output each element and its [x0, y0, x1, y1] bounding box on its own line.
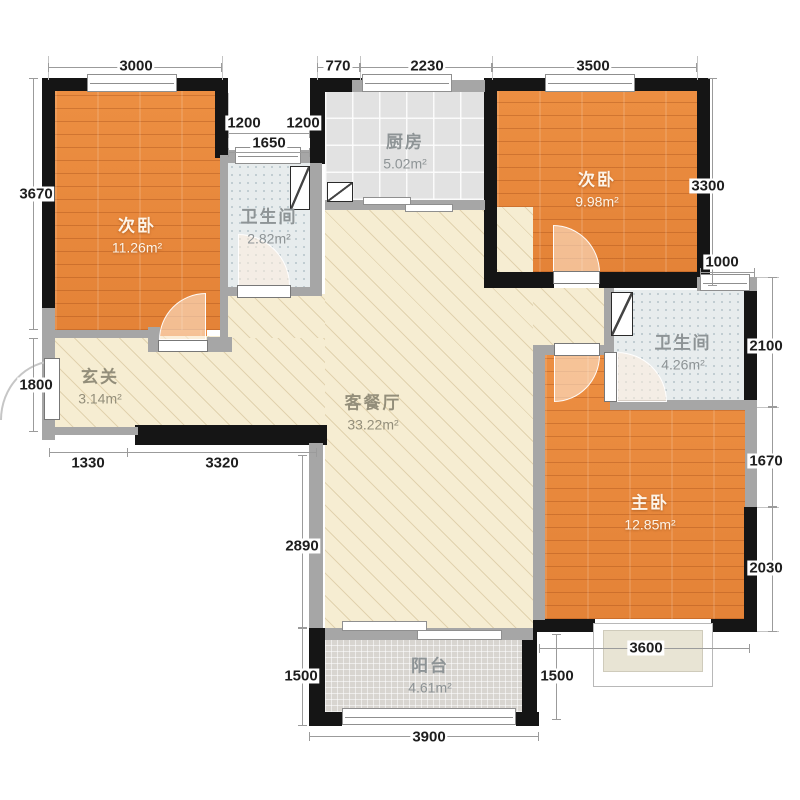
floor-living-east [533, 288, 608, 347]
room-area: 12.85m² [624, 515, 675, 535]
dim-line [700, 272, 755, 273]
room-label-bedroom2: 次卧 9.98m² [575, 168, 619, 211]
wall [484, 272, 554, 288]
wall [48, 427, 138, 435]
sliding-door-panel [342, 621, 427, 631]
fixture-icon [327, 182, 353, 202]
wall [290, 287, 322, 296]
room-label-bedroom1: 次卧 11.26m² [112, 214, 162, 257]
room-area: 9.98m² [575, 192, 619, 212]
dim-label-1200-right: 1200 [284, 116, 321, 131]
dim-label-1500-right: 1500 [538, 669, 575, 684]
window [342, 708, 516, 725]
wall [711, 619, 757, 632]
fixture-icon [290, 166, 310, 210]
wall [135, 425, 327, 445]
window [87, 74, 177, 92]
sliding-door-panel [405, 204, 453, 212]
door-sill [553, 271, 600, 284]
room-label-bathroom1: 卫生间 2.82m² [241, 205, 298, 248]
wall [533, 619, 595, 632]
room-label-master: 主卧 12.85m² [624, 491, 675, 534]
room-name: 玄关 [78, 365, 122, 389]
room-label-kitchen: 厨房 5.02m² [383, 130, 427, 173]
room-name: 阳台 [408, 654, 452, 678]
room-area: 5.02m² [383, 154, 427, 174]
dim-line [49, 452, 317, 453]
wall [220, 155, 228, 338]
room-area: 11.26m² [112, 238, 162, 258]
dim-label-1500-left: 1500 [282, 669, 319, 684]
window [362, 74, 452, 92]
wall [484, 82, 497, 272]
dim-label-3900: 3900 [410, 730, 447, 745]
window [700, 274, 750, 291]
wall [516, 712, 539, 726]
wall [533, 345, 545, 620]
fixture-icon [611, 292, 633, 336]
room-label-entry: 玄关 3.14m² [78, 365, 122, 408]
dim-label-1800: 1800 [17, 378, 54, 393]
extension-line [697, 56, 698, 80]
room-label-balcony: 阳台 4.61m² [408, 654, 452, 697]
wall [309, 712, 342, 726]
dim-label-1330: 1330 [69, 456, 106, 471]
door-leaf [604, 352, 617, 402]
room-area: 4.26m² [655, 355, 712, 375]
door-sill [554, 343, 600, 356]
room-name: 卫生间 [241, 205, 298, 229]
room-area: 3.14m² [78, 389, 122, 409]
dim-label-3670: 3670 [17, 187, 54, 202]
dim-line [228, 152, 310, 153]
sliding-door-panel [363, 197, 411, 205]
wall [522, 628, 537, 718]
room-area: 33.22m² [345, 415, 402, 435]
dim-label-3300: 3300 [689, 179, 726, 194]
dim-label-3600: 3600 [627, 641, 664, 656]
dim-label-3320: 3320 [203, 456, 240, 471]
window [545, 74, 635, 92]
dim-label-2030: 2030 [747, 561, 784, 576]
wall [55, 330, 155, 338]
extension-line [222, 56, 223, 80]
room-area: 2.82m² [241, 229, 298, 249]
room-name: 主卧 [624, 491, 675, 515]
dim-label-770: 770 [323, 59, 352, 74]
wall [309, 443, 323, 628]
room-name: 客餐厅 [345, 391, 402, 415]
wall [310, 163, 322, 296]
room-label-bathroom2: 卫生间 4.26m² [655, 331, 712, 374]
door-sill [158, 340, 208, 352]
dim-label-1670: 1670 [747, 454, 784, 469]
dim-label-3000: 3000 [117, 59, 154, 74]
dim-tick [127, 448, 128, 457]
dim-label-1200-left: 1200 [225, 116, 262, 131]
wall [599, 272, 710, 288]
room-area: 4.61m² [408, 678, 452, 698]
room-name: 次卧 [112, 214, 162, 238]
floor-corridor [228, 294, 325, 338]
dim-label-2890: 2890 [283, 539, 320, 554]
room-name: 卫生间 [655, 331, 712, 355]
dim-label-1000: 1000 [703, 255, 740, 270]
room-name: 次卧 [575, 168, 619, 192]
sliding-door-panel [417, 630, 502, 640]
room-name: 厨房 [383, 130, 427, 154]
dim-line [33, 78, 34, 330]
dim-label-2230: 2230 [408, 59, 445, 74]
door-sill [237, 285, 291, 298]
room-label-living: 客餐厅 33.22m² [345, 391, 402, 434]
wall [207, 337, 232, 352]
floor-plan: 3000 770 2230 3500 1200 1200 1650 3670 1… [0, 0, 800, 800]
dim-label-2100: 2100 [747, 339, 784, 354]
dim-label-3500: 3500 [574, 59, 611, 74]
dim-label-1650: 1650 [250, 136, 287, 151]
